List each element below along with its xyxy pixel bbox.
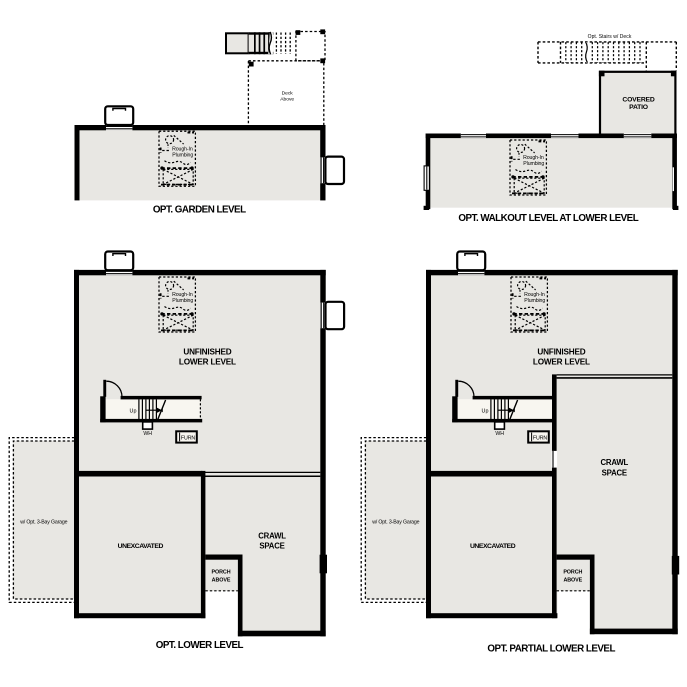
svg-text:OPT. GARDEN LEVEL: OPT. GARDEN LEVEL bbox=[153, 204, 246, 215]
svg-text:w/ Opt. 3-Bay Garage: w/ Opt. 3-Bay Garage bbox=[20, 519, 67, 525]
svg-text:CRAWL: CRAWL bbox=[601, 458, 629, 467]
svg-text:CRAWL: CRAWL bbox=[258, 531, 286, 540]
svg-text:ABOVE: ABOVE bbox=[212, 577, 231, 583]
svg-text:OPT. LOWER LEVEL: OPT. LOWER LEVEL bbox=[156, 640, 244, 651]
svg-text:w/ Opt. 3-Bay Garage: w/ Opt. 3-Bay Garage bbox=[372, 519, 419, 525]
svg-text:PORCH: PORCH bbox=[563, 569, 582, 575]
svg-text:SPACE: SPACE bbox=[602, 468, 627, 477]
svg-text:OPT. WALKOUT LEVEL AT LOWER LE: OPT. WALKOUT LEVEL AT LOWER LEVEL bbox=[458, 213, 638, 224]
svg-text:ABOVE: ABOVE bbox=[563, 577, 582, 583]
svg-text:LOWER LEVEL: LOWER LEVEL bbox=[179, 357, 236, 366]
svg-text:UNEXCAVATED: UNEXCAVATED bbox=[118, 543, 164, 550]
svg-text:UNEXCAVATED: UNEXCAVATED bbox=[470, 543, 516, 550]
svg-text:PATIO: PATIO bbox=[629, 104, 648, 111]
svg-text:COVERED: COVERED bbox=[622, 97, 655, 104]
svg-text:UNFINISHED: UNFINISHED bbox=[537, 348, 585, 357]
svg-text:UNFINISHED: UNFINISHED bbox=[183, 348, 231, 357]
svg-text:Above: Above bbox=[280, 96, 294, 102]
svg-text:OPT. PARTIAL LOWER LEVEL: OPT. PARTIAL LOWER LEVEL bbox=[487, 643, 615, 654]
svg-text:PORCH: PORCH bbox=[212, 569, 231, 575]
svg-text:LOWER LEVEL: LOWER LEVEL bbox=[533, 357, 590, 366]
svg-text:Deck: Deck bbox=[282, 90, 294, 96]
svg-text:SPACE: SPACE bbox=[259, 542, 284, 551]
svg-text:Opt. Stairs w/ Deck: Opt. Stairs w/ Deck bbox=[588, 34, 632, 40]
